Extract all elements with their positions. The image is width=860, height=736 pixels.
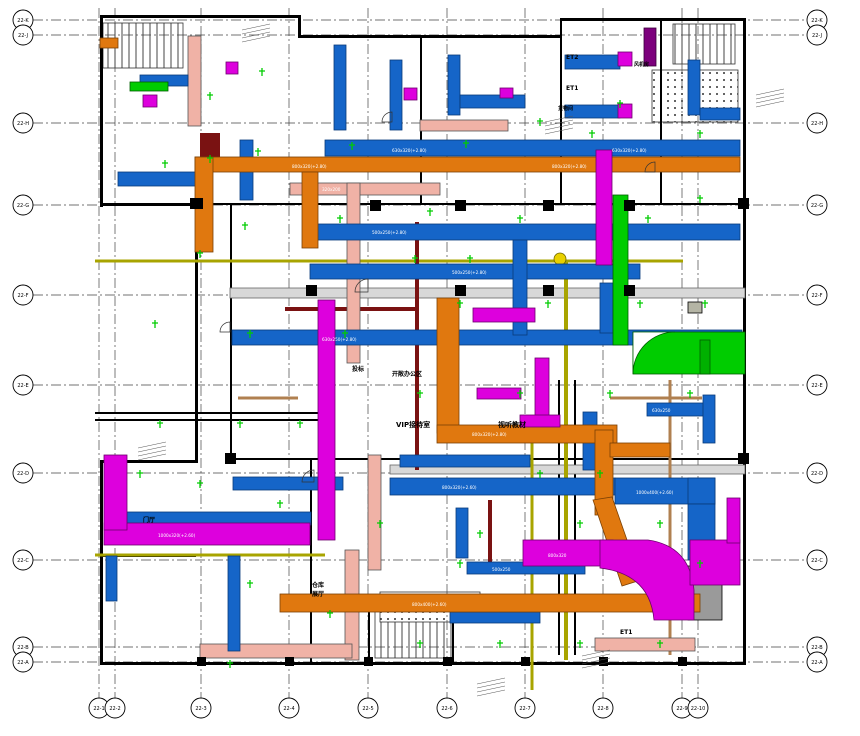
column	[738, 453, 749, 464]
wall	[100, 662, 746, 665]
wall	[560, 18, 745, 21]
column	[364, 657, 373, 666]
column	[521, 657, 530, 666]
duct-size-label: 500x250(+2.80)	[372, 230, 407, 235]
magenta-duct	[520, 415, 560, 427]
salmon-duct	[368, 455, 381, 570]
instrument-mark	[247, 580, 253, 588]
damper	[543, 200, 554, 211]
green-riser	[613, 195, 628, 345]
damper	[455, 285, 466, 296]
column	[738, 198, 749, 209]
duct-size-label: 800x320(+2.80)	[472, 432, 507, 437]
blue-duct	[460, 95, 525, 108]
magenta-cap	[404, 88, 417, 100]
blue-duct	[456, 508, 468, 558]
column	[285, 657, 294, 666]
orange-duct	[610, 443, 670, 457]
grid-label-left: 22-F	[17, 293, 28, 299]
room-label: 仓库	[311, 581, 324, 589]
wall	[100, 15, 300, 18]
damper	[543, 285, 554, 296]
magenta-duct	[477, 388, 521, 399]
magenta-cap	[143, 95, 157, 107]
wall	[298, 15, 301, 37]
riser-pipe	[574, 380, 576, 655]
instrument-mark	[517, 215, 523, 223]
duct-size-label: 500x250(+2.80)	[452, 270, 487, 275]
salmon-duct	[595, 638, 695, 651]
room-label: 展厅	[312, 590, 324, 598]
instrument-mark	[197, 480, 203, 488]
instrument-mark	[637, 300, 643, 308]
grid-label-left: 22-E	[17, 383, 28, 389]
damper	[624, 200, 635, 211]
blue-duct-main	[325, 140, 740, 156]
magenta-riser	[596, 150, 612, 265]
room-label: 风机房	[634, 61, 649, 68]
wall	[298, 35, 562, 38]
duct-size-label: 630x250(+2.80)	[322, 337, 357, 342]
room-label: 货物间	[558, 105, 573, 112]
magenta-duct	[473, 308, 535, 322]
olive-node	[554, 253, 566, 265]
room-label: ET2	[566, 54, 578, 61]
grid-label-left: 22-D	[17, 471, 29, 477]
wall	[100, 460, 103, 665]
magenta-cap	[226, 62, 238, 74]
instrument-mark	[702, 300, 708, 308]
blue-duct	[118, 172, 198, 186]
purple-riser	[644, 28, 656, 66]
magenta-cap	[618, 52, 632, 66]
duct-size-label: 630x320(+2.80)	[612, 148, 647, 153]
duct-size-label: 320x200	[322, 187, 341, 192]
floor-plan-page: 22-K22-K22-J22-J22-H22-H22-G22-G22-F22-F…	[0, 0, 860, 736]
instrument-mark	[277, 500, 283, 508]
orange-duct	[437, 298, 459, 433]
pipe	[95, 412, 330, 414]
duct-size-label: 1000x320(+2.60)	[158, 533, 196, 538]
darkred-shaft	[200, 133, 220, 157]
magenta-cap	[500, 88, 513, 98]
duct-layer	[95, 15, 749, 690]
grid-label-right: 22-C	[811, 558, 823, 564]
wall	[100, 203, 198, 206]
magenta-duct-main	[104, 523, 310, 545]
column	[443, 657, 452, 666]
room-label: ET1	[620, 629, 632, 636]
duct-size-label: 800x400(+2.60)	[412, 602, 447, 607]
grid-label-bottom: 22-1	[93, 706, 104, 712]
room-label: 视听教材	[498, 420, 526, 429]
grid-label-bottom: 22-8	[597, 706, 608, 712]
grid-label-left: 22-J	[18, 33, 28, 39]
blue-duct	[106, 556, 117, 601]
duct-size-label: 800x320(+2.80)	[292, 164, 327, 169]
grid-label-bottom: 22-10	[691, 706, 706, 712]
instrument-mark	[259, 68, 265, 76]
salmon-duct	[188, 36, 201, 126]
column	[190, 198, 203, 209]
instrument-mark	[137, 470, 143, 478]
blue-duct	[688, 60, 700, 115]
grid-label-right: 22-E	[811, 383, 822, 389]
blue-duct	[390, 478, 615, 495]
grid-label-right: 22-H	[811, 121, 823, 127]
instrument-mark	[577, 520, 583, 528]
instrument-mark	[477, 530, 483, 538]
grid-label-left: 22-G	[17, 203, 29, 209]
damper	[624, 285, 635, 296]
damper	[370, 200, 381, 211]
blue-duct	[600, 283, 613, 333]
grid-label-right: 22-B	[811, 645, 823, 651]
orange-duct	[100, 38, 118, 48]
instrument-mark	[589, 130, 595, 138]
blue-duct	[334, 45, 346, 130]
wall-corridor	[195, 203, 745, 205]
magenta-riser	[318, 300, 335, 540]
duct-size-label: 800x320(+2.60)	[442, 485, 477, 490]
room-label: VIP接待室	[396, 420, 430, 429]
grid-label-bottom: 22-7	[519, 706, 530, 712]
duct-size-label: 1000x400(+2.60)	[636, 490, 674, 495]
damper	[455, 200, 466, 211]
instrument-mark	[152, 320, 158, 328]
magenta-riser	[727, 498, 740, 543]
blue-duct	[400, 455, 530, 467]
grid-label-right: 22-K	[811, 18, 823, 24]
room-label: 门厅	[143, 516, 155, 524]
pipe	[95, 419, 330, 421]
blue-duct	[448, 55, 460, 115]
instrument-mark	[645, 215, 651, 223]
column	[197, 657, 206, 666]
magenta-duct	[104, 455, 127, 530]
instrument-mark	[207, 92, 213, 100]
salmon-duct	[420, 120, 508, 131]
instrument-mark	[297, 420, 303, 428]
grid-label-left: 22-C	[17, 558, 29, 564]
instrument-mark	[237, 420, 243, 428]
instrument-mark	[157, 420, 163, 428]
grid-label-bottom: 22-9	[676, 706, 687, 712]
grid-label-bottom: 22-3	[195, 706, 206, 712]
instrument-mark	[162, 160, 168, 168]
blue-duct	[700, 108, 740, 120]
grey-box	[688, 302, 702, 313]
grid-label-left: 22-H	[17, 121, 29, 127]
room-label: 开敞办公区	[392, 370, 422, 378]
orange-duct-main	[195, 157, 740, 172]
blue-duct-elbow	[688, 478, 715, 504]
duct-size-label: 800x320	[548, 553, 567, 558]
grid-label-bottom: 22-5	[362, 706, 373, 712]
orange-duct	[302, 172, 318, 248]
grid-label-right: 22-J	[812, 33, 822, 39]
grid-label-left: 22-K	[17, 18, 29, 24]
instrument-mark	[657, 520, 663, 528]
grid-label-left: 22-B	[17, 645, 29, 651]
grid-label-right: 22-A	[811, 660, 823, 666]
instrument-mark	[545, 300, 551, 308]
green-duct	[700, 340, 710, 374]
room-label: 投标	[352, 365, 364, 373]
door-arc	[220, 322, 230, 332]
instrument-mark	[457, 560, 463, 568]
grid-label-bottom: 22-4	[283, 706, 294, 712]
instrument-mark	[427, 208, 433, 216]
duct-size-label: 800x320(+2.80)	[552, 164, 587, 169]
instrument-mark	[337, 215, 343, 223]
room-label: ET1	[566, 85, 578, 92]
floor-plan-canvas: 22-K22-K22-J22-J22-H22-H22-G22-G22-F22-F…	[0, 0, 860, 736]
orange-duct	[437, 425, 617, 443]
orange-duct-bottom	[280, 594, 700, 612]
grid-label-right: 22-F	[811, 293, 822, 299]
blue-duct-et1	[565, 105, 620, 118]
instrument-mark	[537, 118, 543, 126]
column	[678, 657, 687, 666]
grid-label-bottom: 22-6	[441, 706, 452, 712]
duct-size-label: 630x250	[652, 408, 671, 413]
column	[599, 657, 608, 666]
blue-duct	[703, 395, 715, 443]
damper	[306, 285, 317, 296]
grid-label-right: 22-D	[811, 471, 823, 477]
grid-label-bottom: 22-2	[109, 706, 120, 712]
duct-size-label: 500x250	[492, 567, 511, 572]
duct-size-label: 630x320(+2.80)	[392, 148, 427, 153]
blue-duct	[450, 612, 540, 623]
green-duct	[130, 82, 168, 91]
salmon-duct	[200, 644, 352, 658]
instrument-mark	[242, 222, 248, 230]
blue-duct	[228, 556, 240, 651]
instrument-mark	[255, 148, 261, 156]
magenta-duct	[523, 540, 613, 566]
column	[225, 453, 236, 464]
grid-label-left: 22-A	[17, 660, 29, 666]
grid-label-right: 22-G	[811, 203, 823, 209]
wall	[660, 18, 662, 204]
